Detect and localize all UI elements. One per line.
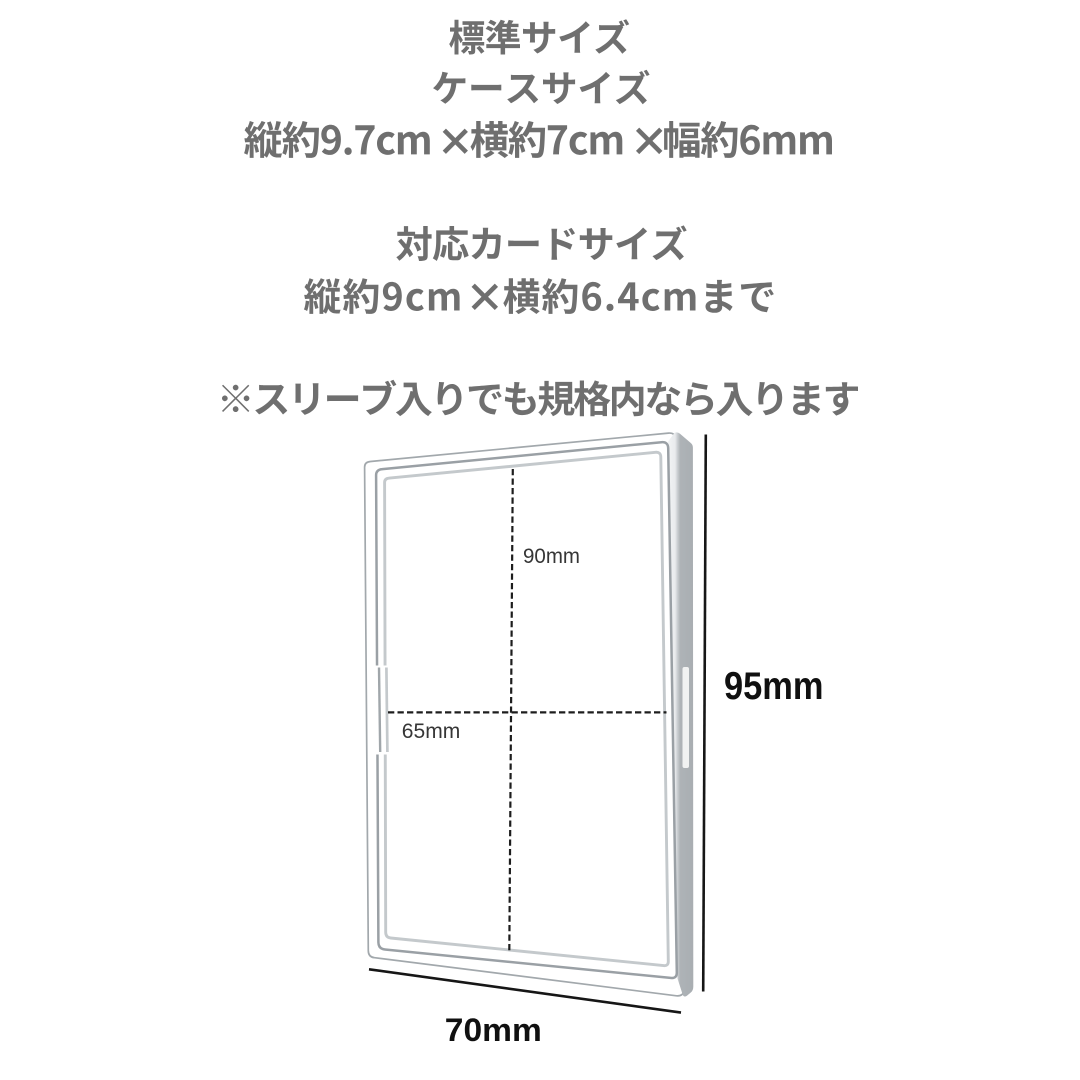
svg-text:95mm: 95mm bbox=[724, 664, 824, 708]
svg-text:65mm: 65mm bbox=[402, 718, 461, 743]
svg-text:90mm: 90mm bbox=[523, 543, 580, 568]
svg-text:70mm: 70mm bbox=[445, 1011, 542, 1048]
